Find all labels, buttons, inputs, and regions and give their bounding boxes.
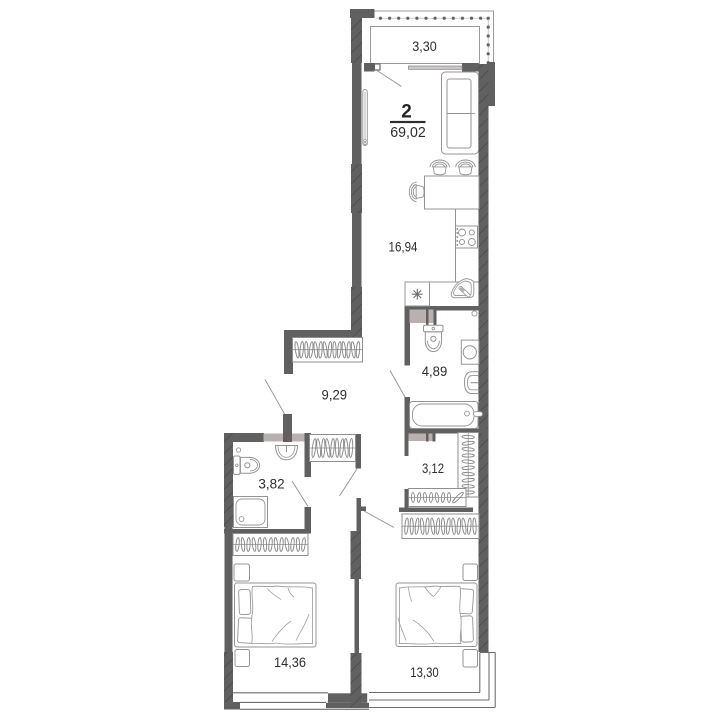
- svg-text:9,29: 9,29: [322, 386, 348, 402]
- svg-text:4,89: 4,89: [422, 363, 448, 379]
- svg-text:3,30: 3,30: [412, 38, 437, 54]
- svg-text:14,36: 14,36: [274, 654, 306, 670]
- svg-text:2: 2: [401, 102, 412, 123]
- svg-text:3,82: 3,82: [258, 475, 284, 491]
- svg-text:13,30: 13,30: [410, 664, 439, 680]
- svg-text:16,94: 16,94: [389, 238, 418, 254]
- svg-text:69,02: 69,02: [390, 125, 426, 141]
- svg-text:3,12: 3,12: [422, 460, 444, 476]
